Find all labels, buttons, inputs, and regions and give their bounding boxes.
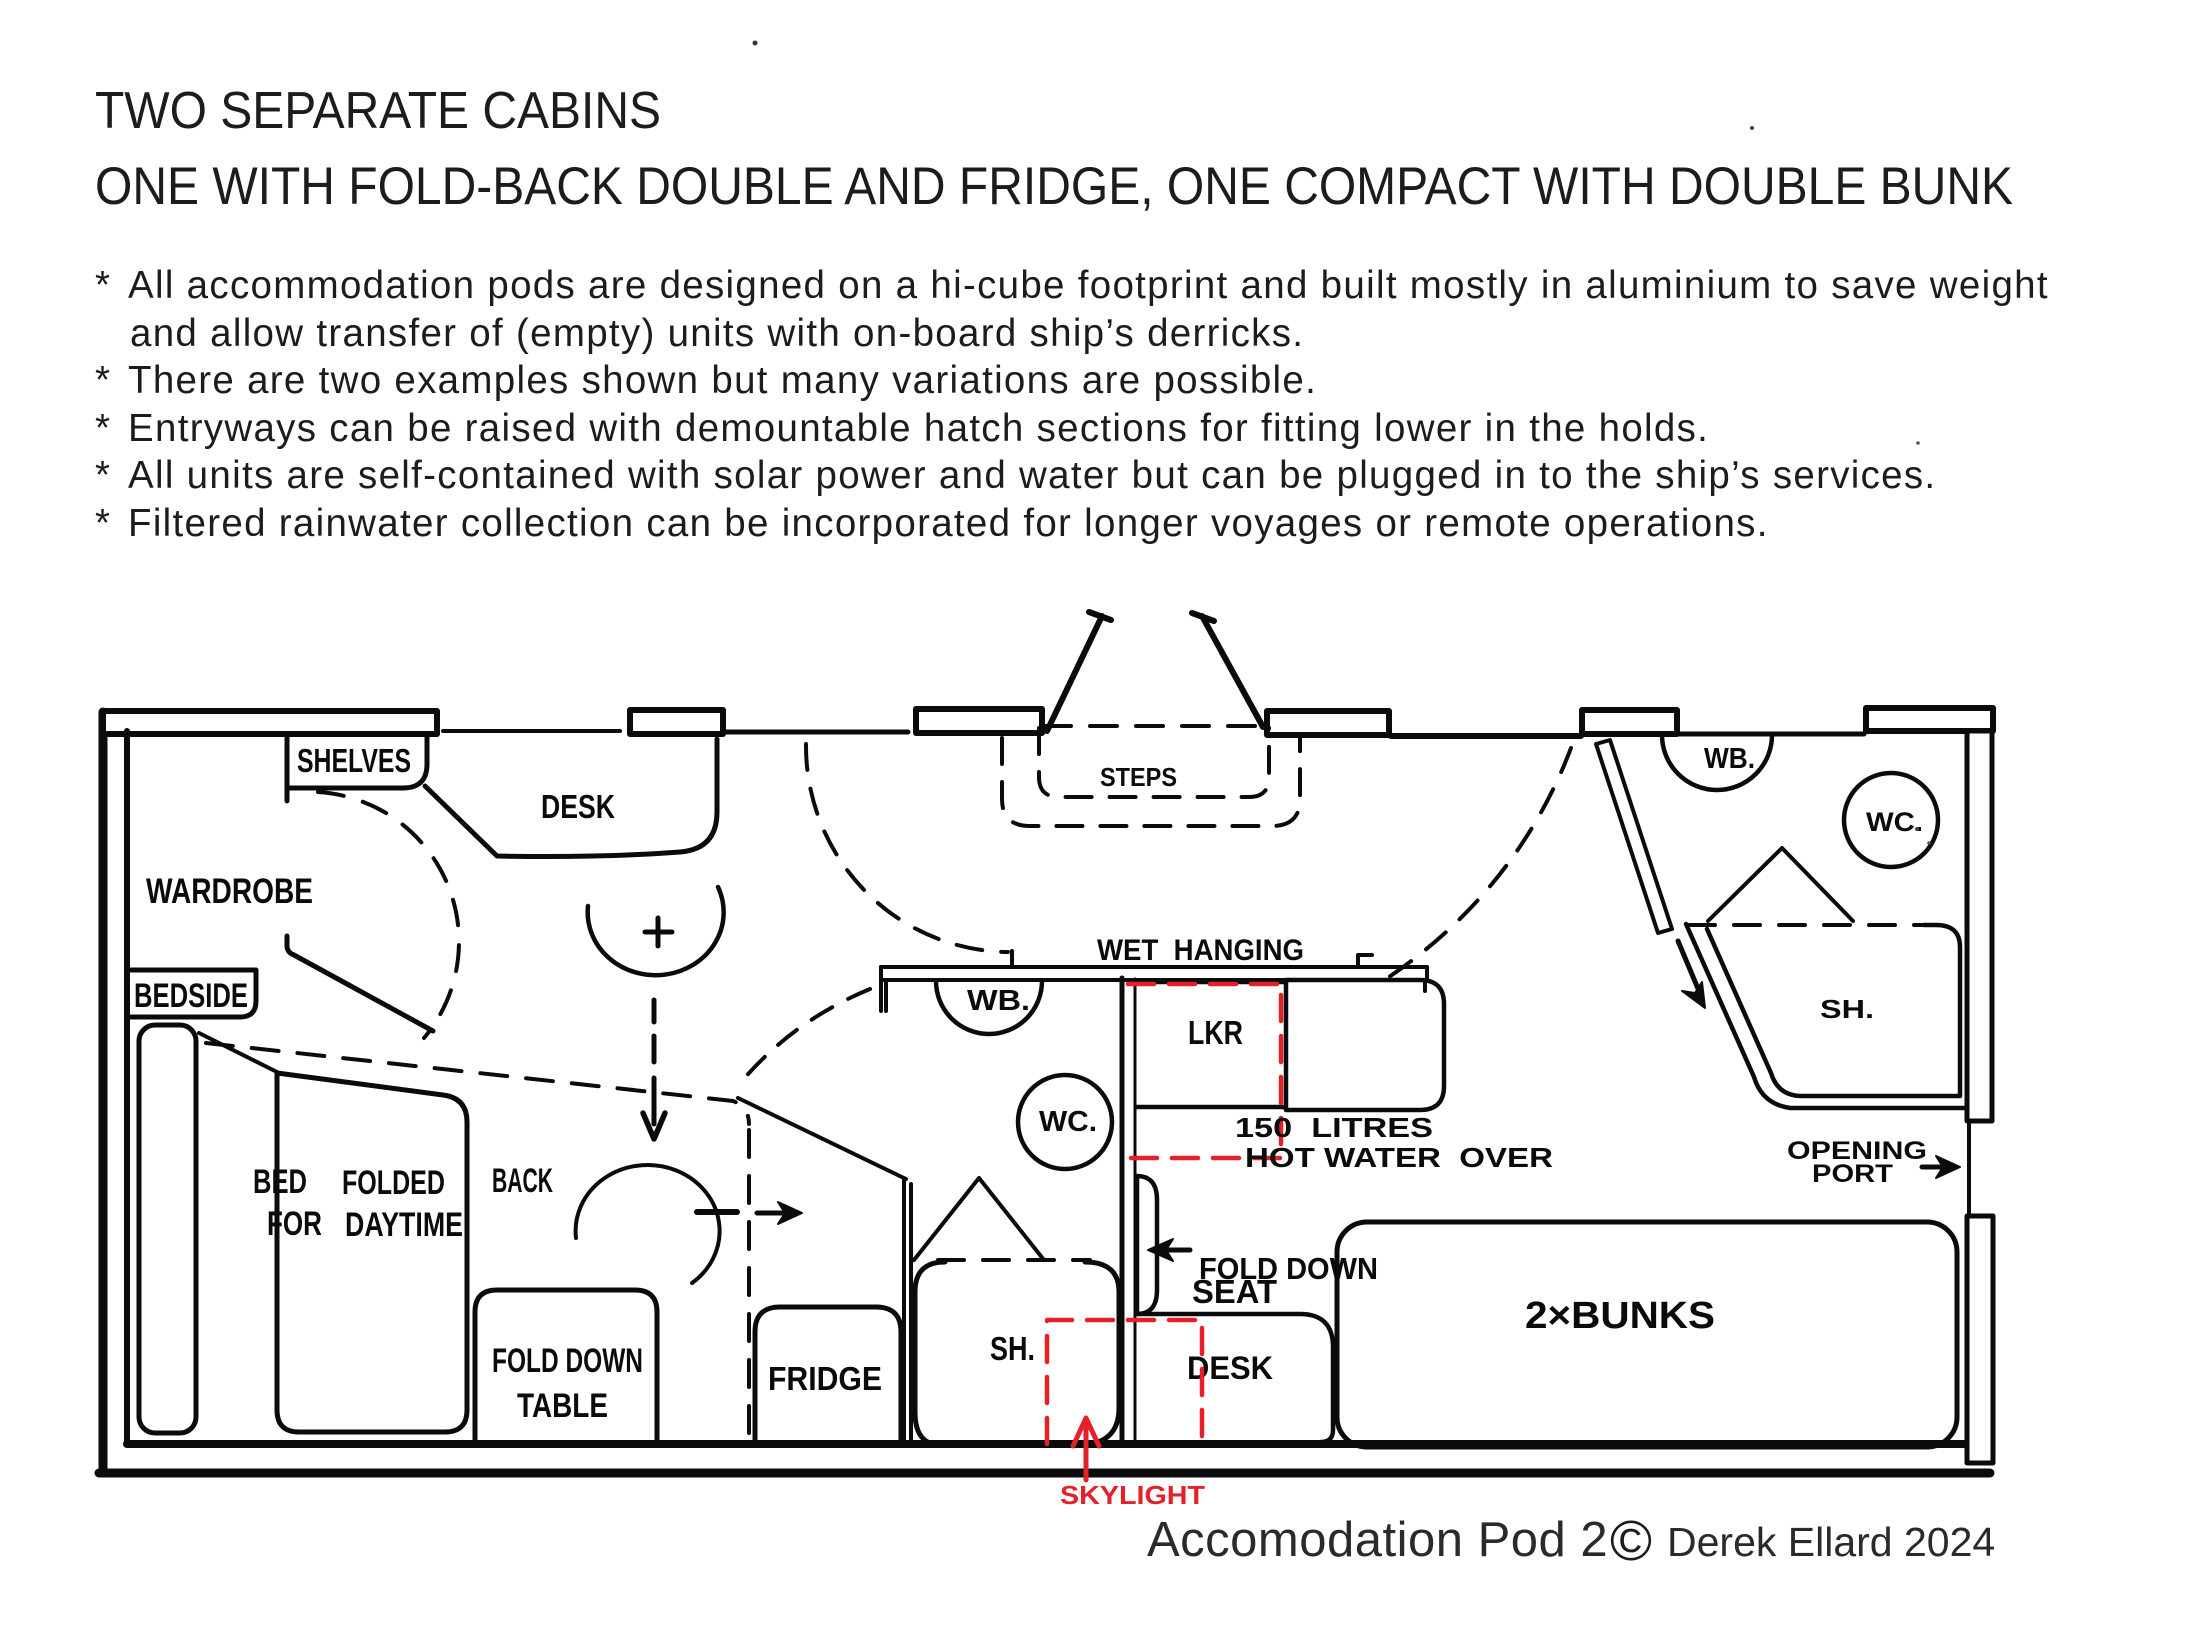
- svg-text:TWO SEPARATE CABINS: TWO SEPARATE CABINS: [95, 81, 661, 139]
- svg-text:Derek Ellard 2024: Derek Ellard 2024: [1667, 1519, 1995, 1565]
- svg-text:DAYTIME: DAYTIME: [345, 1206, 463, 1244]
- svg-text:*: *: [95, 502, 111, 545]
- svg-text:There are two examples shown b: There are two examples shown but many va…: [128, 359, 1317, 402]
- svg-text:ONE WITH FOLD-BACK DOUBLE AND: ONE WITH FOLD-BACK DOUBLE AND FRIDGE, ON…: [95, 157, 2013, 216]
- svg-text:Filtered rainwater collection: Filtered rainwater collection can be inc…: [128, 502, 1769, 545]
- svg-text:SEAT: SEAT: [1192, 1273, 1277, 1310]
- svg-text:HOT WATER OVER: HOT WATER OVER: [1245, 1142, 1553, 1173]
- svg-text:FOLD DOWN: FOLD DOWN: [492, 1342, 643, 1380]
- svg-text:*: *: [95, 407, 111, 450]
- svg-text:BACK: BACK: [492, 1162, 553, 1200]
- svg-text:2×BUNKS: 2×BUNKS: [1525, 1295, 1715, 1337]
- svg-text:*: *: [95, 359, 111, 402]
- svg-text:WC.: WC.: [1866, 807, 1923, 837]
- svg-text:SH.: SH.: [990, 1330, 1035, 1367]
- svg-text:FOLDED: FOLDED: [342, 1164, 445, 1202]
- svg-text:150 LITRES: 150 LITRES: [1235, 1112, 1433, 1143]
- svg-text:WET HANGING: WET HANGING: [1097, 934, 1304, 967]
- svg-text:SH.: SH.: [1820, 994, 1874, 1024]
- svg-text:All units are self-contained w: All units are self-contained with solar …: [128, 454, 1936, 497]
- svg-text:WARDROBE: WARDROBE: [146, 872, 313, 911]
- svg-text:©: ©: [1610, 1509, 1652, 1573]
- svg-text:Entryways can be raised with d: Entryways can be raised with demountable…: [128, 407, 1709, 450]
- svg-text:WB.: WB.: [967, 985, 1030, 1017]
- svg-text:WB.: WB.: [1704, 743, 1755, 775]
- svg-text:WC.: WC.: [1039, 1106, 1097, 1138]
- svg-text:FOR: FOR: [267, 1205, 322, 1243]
- svg-text:Accomodation Pod 2: Accomodation Pod 2: [1147, 1513, 1608, 1567]
- svg-text:All accommodation pods are des: All accommodation pods are designed on a…: [128, 264, 2049, 307]
- svg-text:PORT: PORT: [1812, 1160, 1893, 1188]
- svg-text:SHELVES: SHELVES: [297, 742, 411, 779]
- svg-text:LKR: LKR: [1188, 1014, 1243, 1051]
- svg-text:FRIDGE: FRIDGE: [768, 1360, 882, 1397]
- svg-text:SKYLIGHT: SKYLIGHT: [1060, 1480, 1205, 1510]
- svg-text:BEDSIDE: BEDSIDE: [134, 977, 248, 1015]
- svg-text:TABLE: TABLE: [517, 1387, 608, 1425]
- svg-text:and allow transfer of (empty): and allow transfer of (empty) units with…: [130, 312, 1304, 355]
- svg-text:DESK: DESK: [541, 788, 615, 825]
- svg-text:*: *: [95, 264, 111, 307]
- svg-text:*: *: [95, 454, 111, 497]
- svg-text:BED: BED: [253, 1163, 307, 1201]
- svg-text:STEPS: STEPS: [1100, 762, 1177, 792]
